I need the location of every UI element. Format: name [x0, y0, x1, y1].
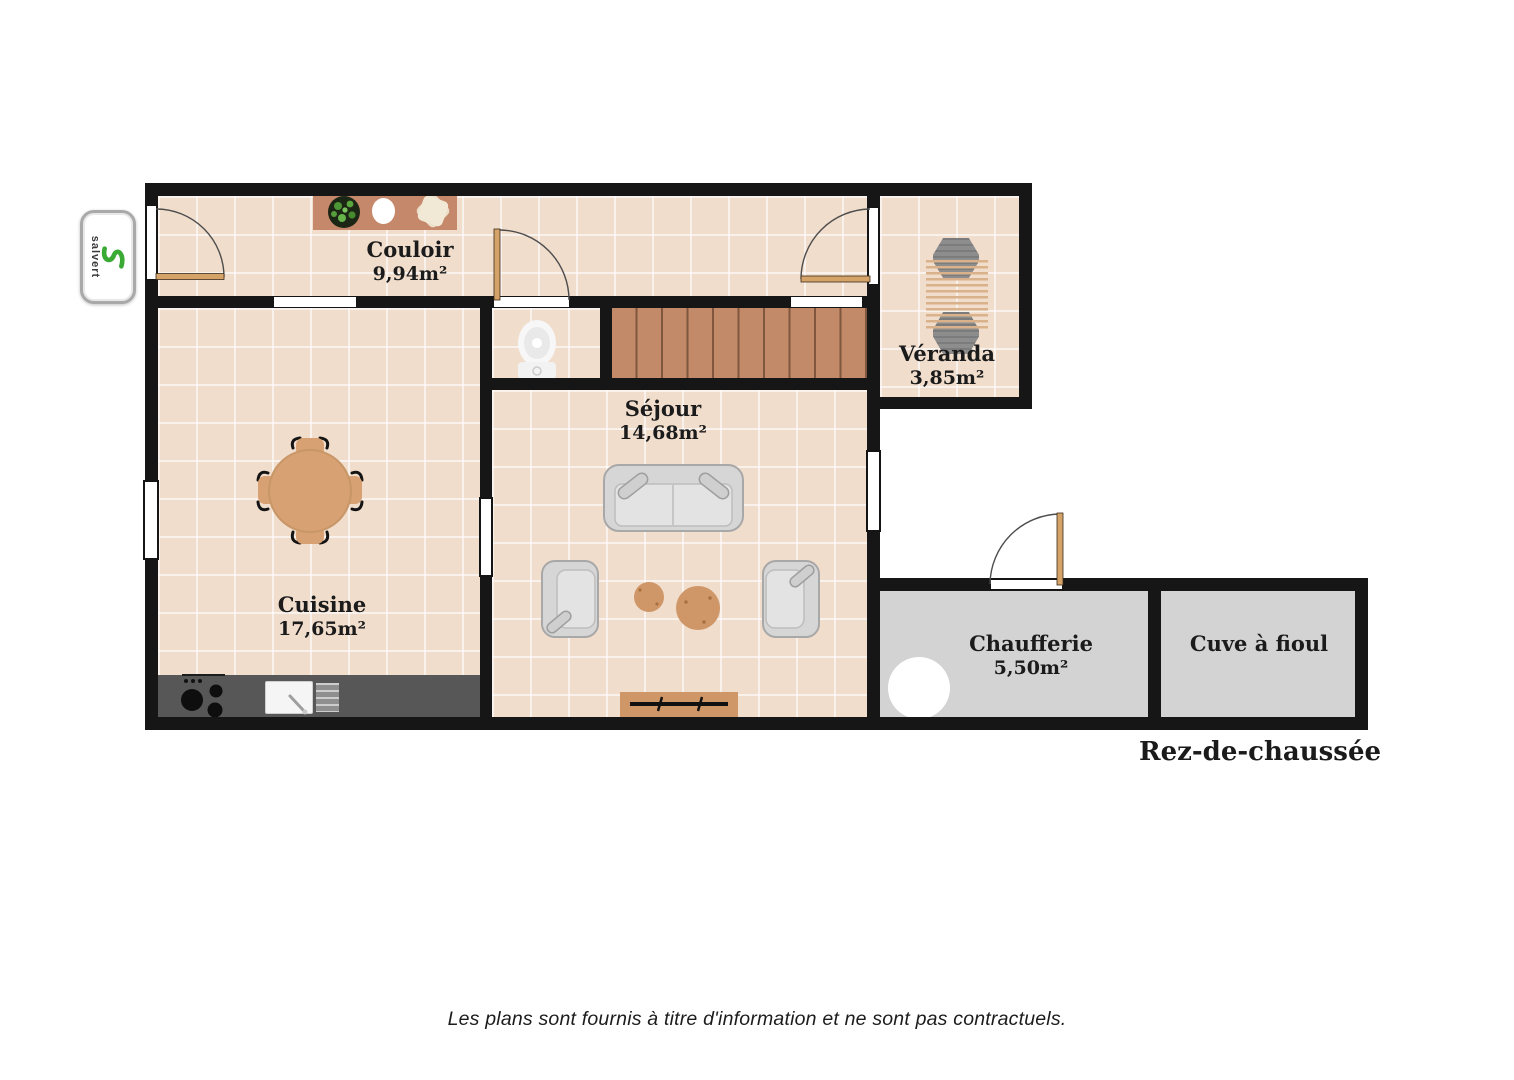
chaufferie-door — [990, 513, 1063, 585]
room-area: 5,50m² — [969, 656, 1093, 681]
room-name: Chaufferie — [969, 631, 1093, 656]
room-area: 9,94m² — [366, 262, 453, 287]
room-name: Cuve à fioul — [1190, 631, 1328, 656]
agency-logo: salvert — [80, 210, 136, 304]
room-area: 17,65m² — [278, 617, 366, 642]
agency-logo-inner: salvert — [86, 216, 130, 298]
doors-overlay — [0, 0, 1514, 1080]
room-area: 14,68m² — [619, 421, 707, 446]
room-label-chaufferie: Chaufferie 5,50m² — [969, 631, 1093, 681]
wc-door — [494, 229, 569, 300]
room-name: Séjour — [619, 396, 707, 421]
room-name: Couloir — [366, 237, 453, 262]
room-area: 3,85m² — [899, 366, 995, 391]
floor-title: Rez-de-chaussée — [1139, 737, 1381, 767]
logo-s-icon — [101, 242, 127, 272]
couloir-veranda-door — [801, 209, 870, 282]
room-label-sejour: Séjour 14,68m² — [619, 396, 707, 446]
room-label-veranda: Véranda 3,85m² — [899, 341, 995, 391]
room-name: Cuisine — [278, 592, 366, 617]
room-label-cuisine: Cuisine 17,65m² — [278, 592, 366, 642]
floor-plan-canvas: Couloir 9,94m² Véranda 3,85m² Cuisine 17… — [0, 0, 1514, 1080]
room-name: Véranda — [899, 341, 995, 366]
logo-brand-text: salvert — [90, 236, 101, 278]
entrance-door — [156, 209, 224, 280]
room-label-couloir: Couloir 9,94m² — [366, 237, 453, 287]
room-label-cuve: Cuve à fioul — [1190, 631, 1328, 656]
disclaimer-text: Les plans sont fournis à titre d'informa… — [0, 1008, 1514, 1031]
